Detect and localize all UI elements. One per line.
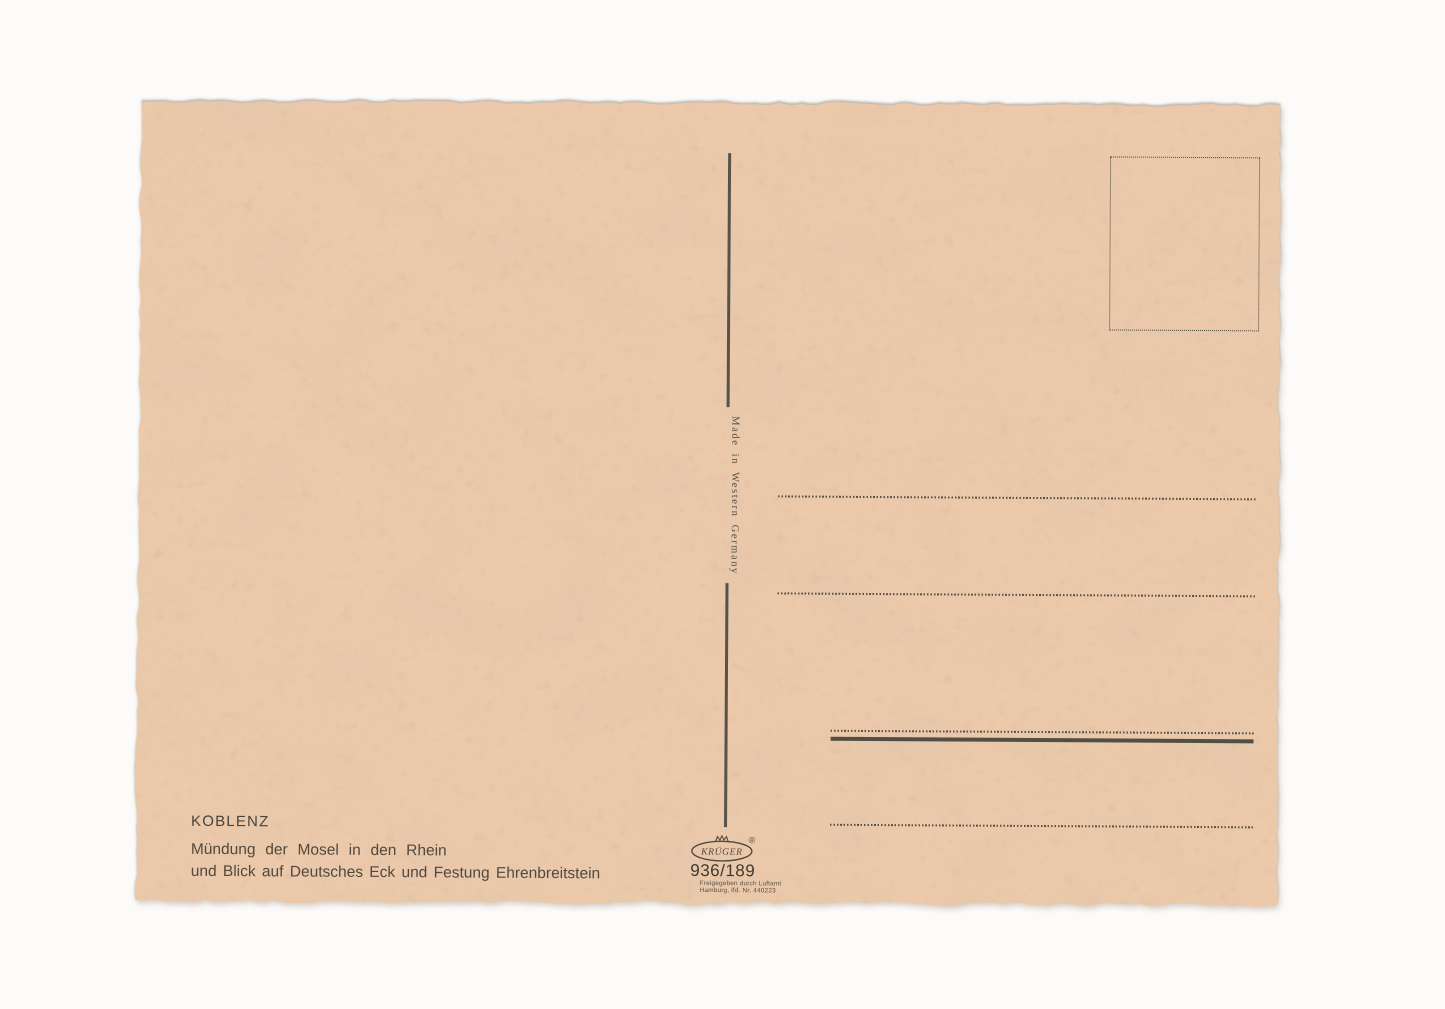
license-line-2: Hamburg, lfd. Nr. 440223 — [700, 887, 810, 895]
stamp-box — [1109, 156, 1260, 331]
address-line-1 — [778, 495, 1257, 500]
divider-line-top — [727, 153, 732, 407]
logo-brand-text: KRÜGER — [700, 846, 743, 858]
printed-layer: Made in Western Germany KOBLENZ Mündung … — [130, 90, 1288, 915]
divider-line-bottom — [724, 583, 728, 827]
license-note: Freigegeben durch Luftamt Hamburg, lfd. … — [700, 880, 810, 895]
address-line-2 — [777, 592, 1256, 597]
address-line-4 — [830, 824, 1253, 828]
card-number: 936/189 — [683, 861, 763, 881]
registered-trademark: ® — [749, 835, 756, 845]
address-baseline-solid — [831, 737, 1254, 743]
address-line-3 — [831, 730, 1254, 734]
postcard-back: Made in Western Germany KOBLENZ Mündung … — [130, 90, 1288, 915]
caption-title: KOBLENZ — [191, 813, 270, 830]
scanner-background: Made in Western Germany KOBLENZ Mündung … — [0, 0, 1445, 1009]
made-in-label: Made in Western Germany — [716, 407, 741, 583]
krueger-logo: KRÜGER ® — [688, 835, 758, 862]
caption-subtitle-line1: Mündung der Mosel in den Rhein — [191, 841, 447, 861]
caption-subtitle-line2: und Blick auf Deutsches Eck und Festung … — [191, 863, 601, 884]
